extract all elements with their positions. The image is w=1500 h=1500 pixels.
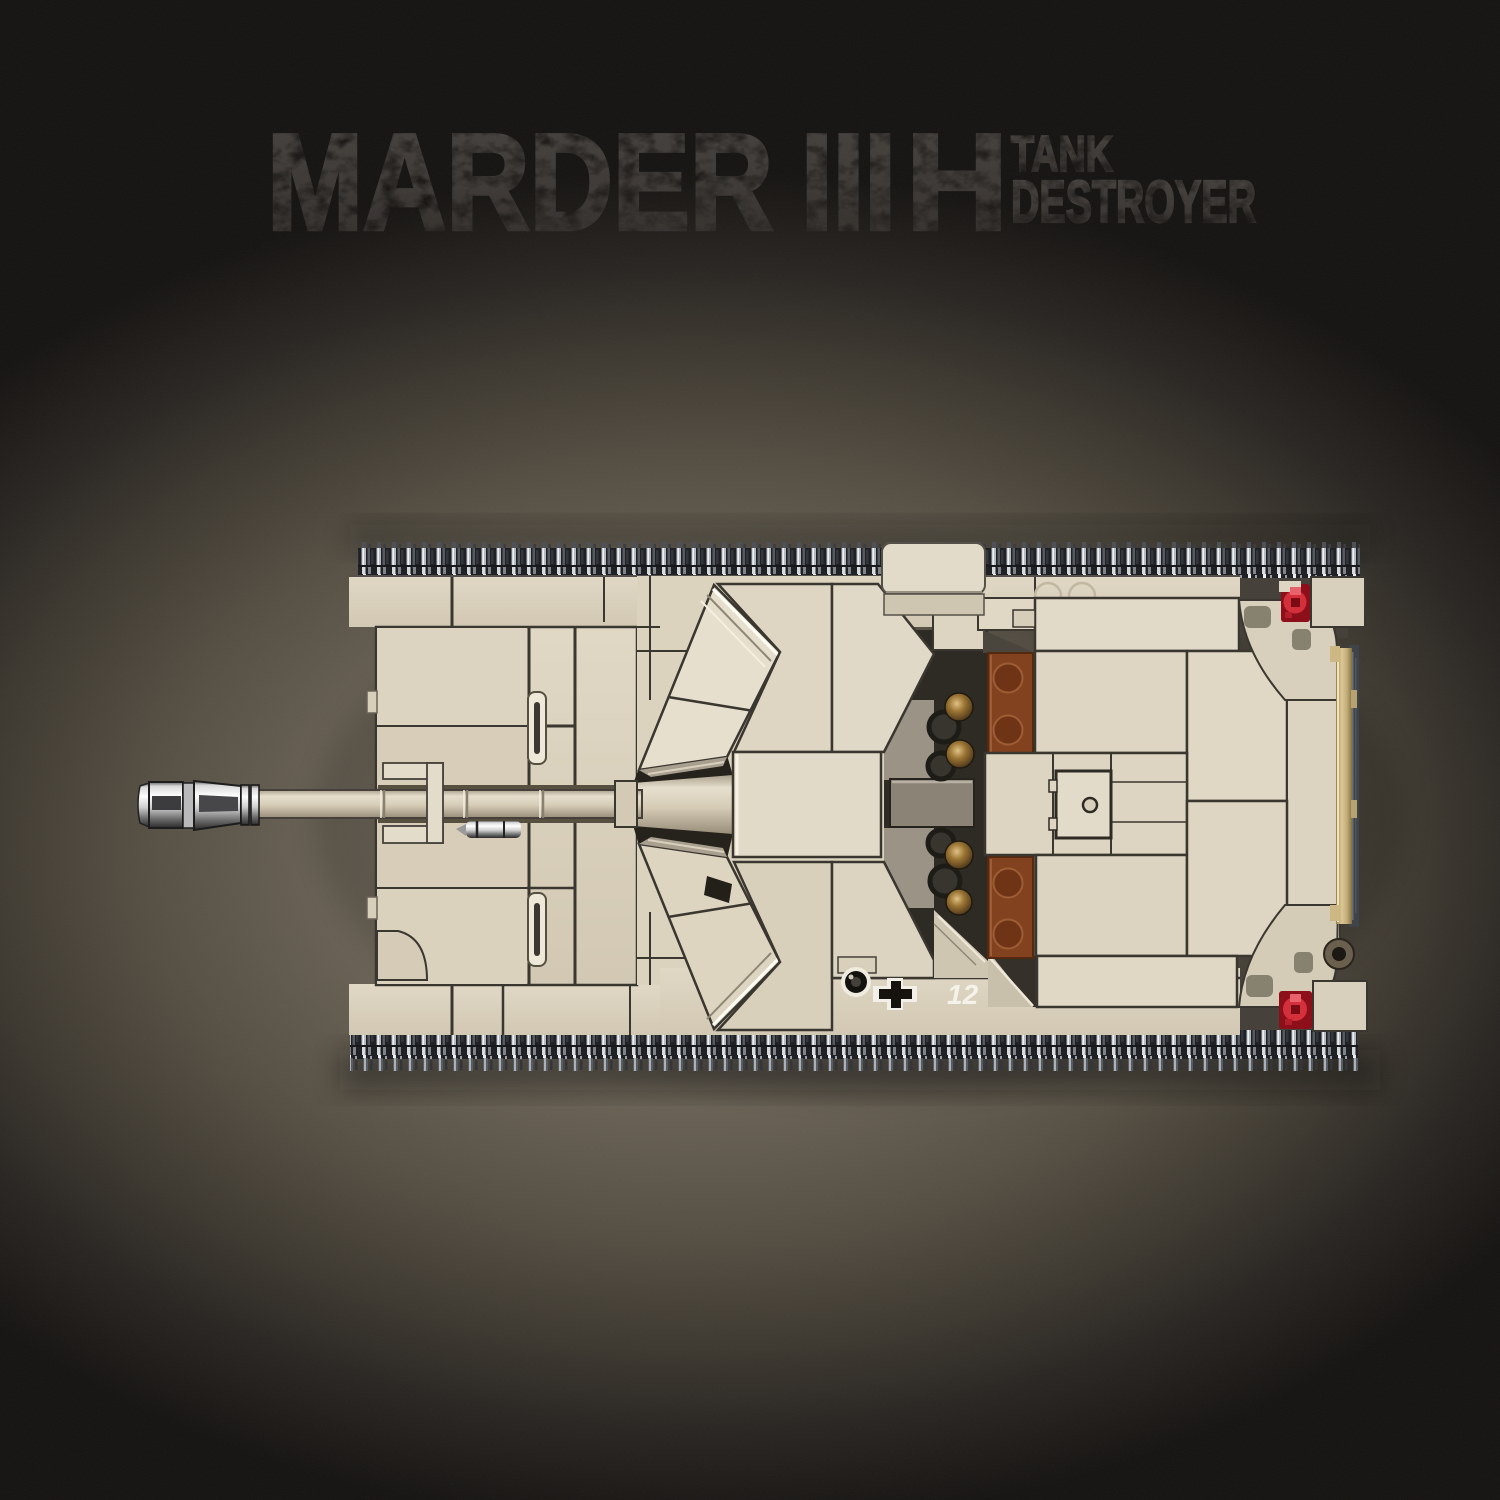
svg-text:12: 12	[947, 979, 979, 1010]
